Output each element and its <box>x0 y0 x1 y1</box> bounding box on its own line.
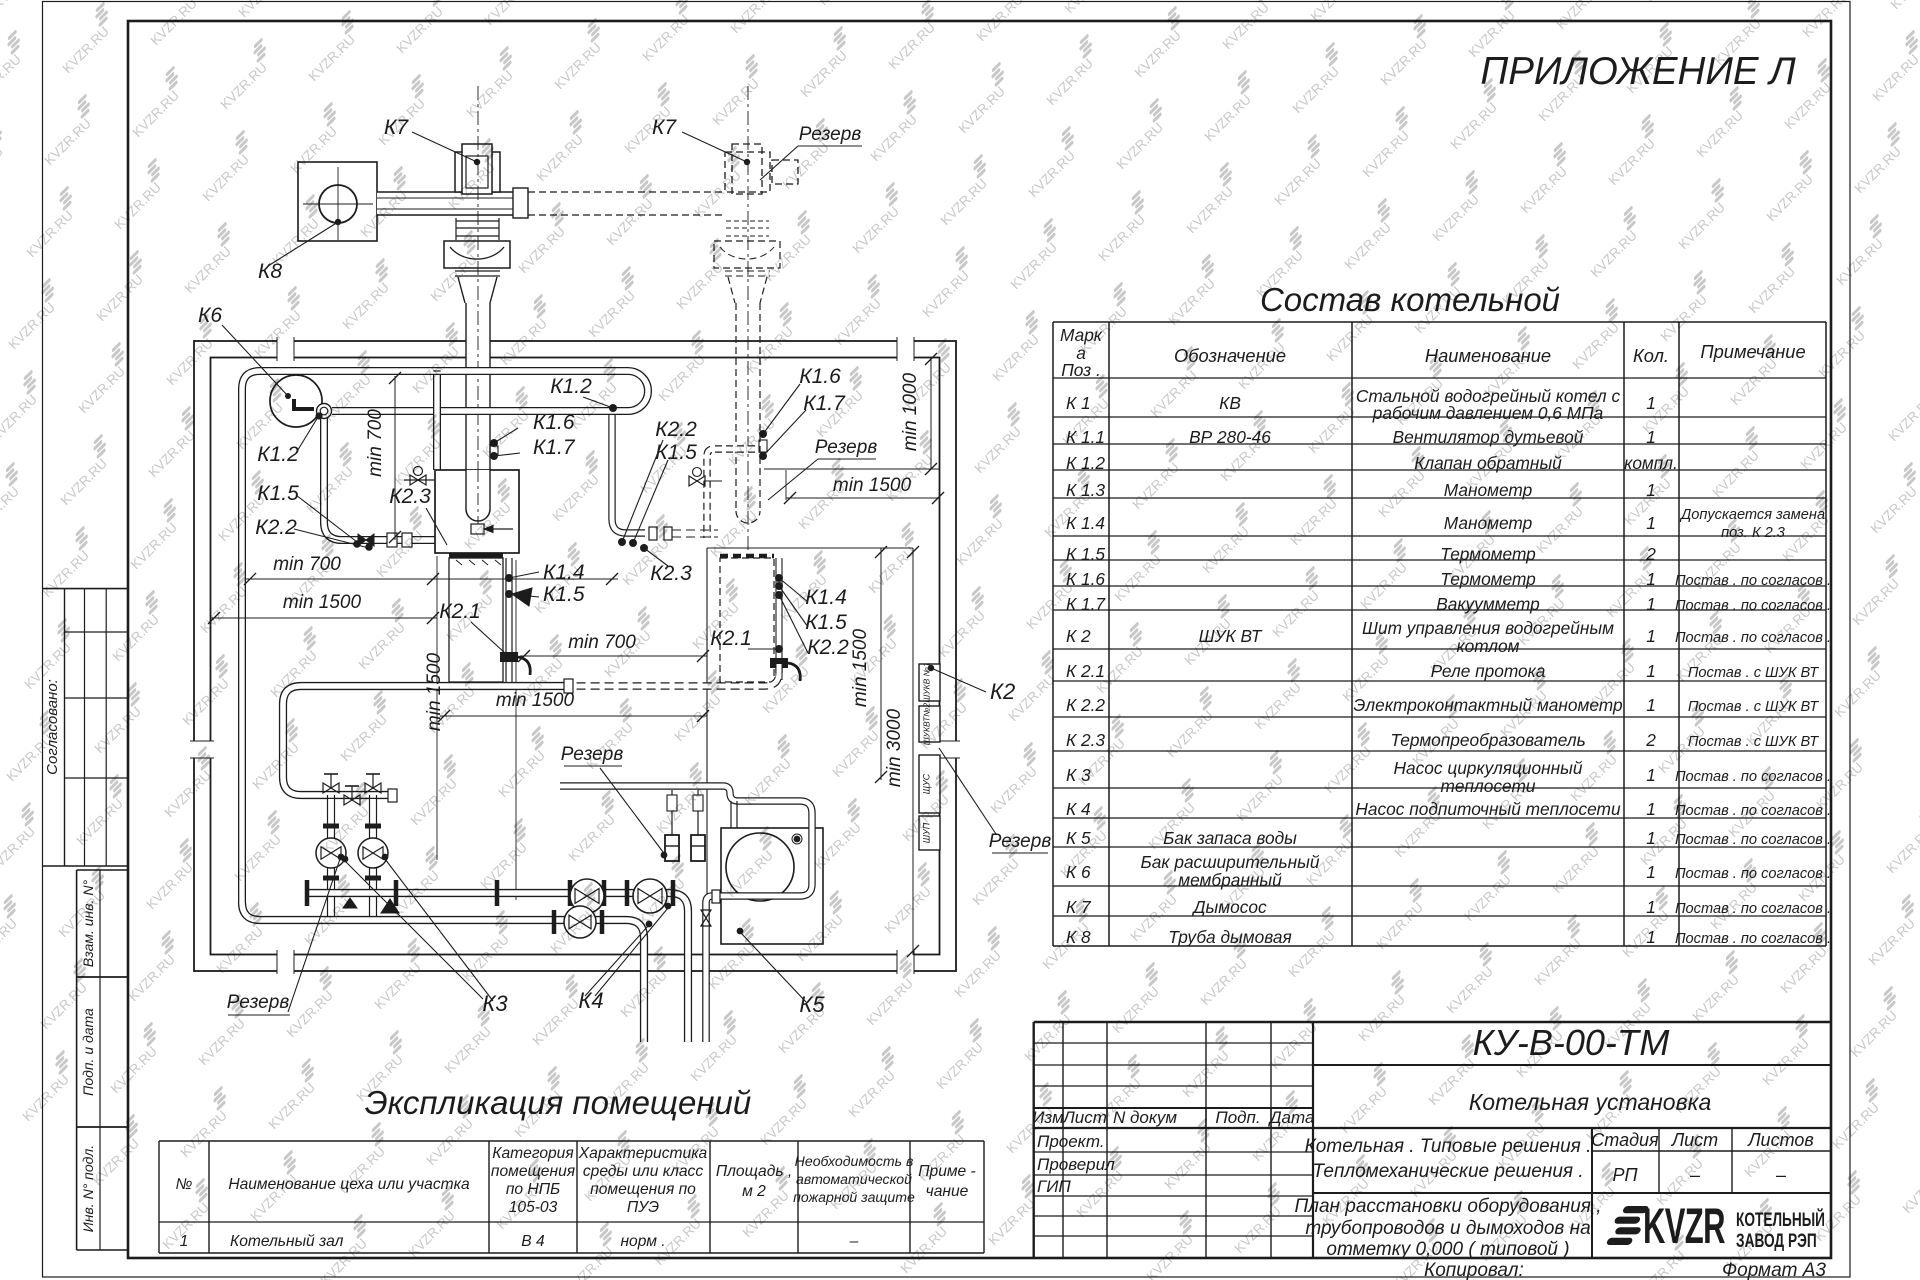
svg-text:трубопроводов и дымоходов на: трубопроводов и дымоходов на <box>1305 1218 1590 1239</box>
svg-text:Резерв: Резерв <box>989 831 1052 852</box>
svg-text:Постав . по согласов .: Постав . по согласов . <box>1675 901 1831 917</box>
svg-text:1: 1 <box>1646 626 1656 646</box>
svg-text:Подп. и дата: Подп. и дата <box>80 1008 96 1096</box>
svg-text:1: 1 <box>1646 594 1656 614</box>
svg-text:Вакуумметр: Вакуумметр <box>1436 594 1540 614</box>
svg-text:К 2.1: К 2.1 <box>1066 661 1105 681</box>
svg-text:В 4: В 4 <box>521 1233 545 1250</box>
svg-text:К 1.5: К 1.5 <box>1066 544 1105 564</box>
svg-text:Резерв: Резерв <box>799 124 862 145</box>
svg-text:Постав . с ШУК ВТ: Постав . с ШУК ВТ <box>1688 665 1819 681</box>
svg-text:min 3000: min 3000 <box>884 708 905 787</box>
svg-text:Электроконтактный манометр: Электроконтактный манометр <box>1353 695 1623 715</box>
svg-text:1: 1 <box>1646 695 1656 715</box>
svg-text:Постав . по согласов .: Постав . по согласов . <box>1675 769 1831 785</box>
svg-text:№: № <box>176 1176 193 1193</box>
svg-text:Примечание: Примечание <box>1700 341 1805 362</box>
svg-text:К 2.2: К 2.2 <box>1066 695 1105 715</box>
svg-text:N докум: N докум <box>1113 1108 1177 1127</box>
svg-text:min 700: min 700 <box>365 409 386 477</box>
svg-text:КВ: КВ <box>1219 393 1241 413</box>
svg-text:Допускается замена: Допускается замена <box>1679 507 1825 523</box>
svg-text:1: 1 <box>1646 661 1656 681</box>
svg-text:Вентилятор дутьевой: Вентилятор дутьевой <box>1393 427 1584 447</box>
svg-text:К1.7: К1.7 <box>533 436 576 459</box>
svg-text:К 1.6: К 1.6 <box>1066 569 1105 589</box>
svg-text:ПУЭ: ПУЭ <box>627 1199 659 1216</box>
svg-text:К1.6: К1.6 <box>799 365 841 388</box>
svg-text:Подп.: Подп. <box>1215 1108 1260 1127</box>
svg-text:Проверил: Проверил <box>1037 1155 1115 1174</box>
svg-text:К1.2: К1.2 <box>257 443 299 466</box>
svg-text:К1.5: К1.5 <box>805 611 847 634</box>
svg-text:К 1.7: К 1.7 <box>1066 594 1106 614</box>
svg-text:–: – <box>1775 1165 1787 1185</box>
svg-text:1: 1 <box>1646 799 1656 819</box>
svg-text:Копировал:: Копировал: <box>1424 1260 1524 1280</box>
svg-text:Бак расширительный: Бак расширительный <box>1141 852 1320 872</box>
svg-text:ЩУС: ЩУС <box>922 773 932 794</box>
svg-text:Бак запаса воды: Бак запаса воды <box>1163 828 1297 848</box>
svg-text:РП: РП <box>1612 1165 1638 1185</box>
svg-text:Проект.: Проект. <box>1037 1132 1105 1151</box>
svg-text:Наименование: Наименование <box>1425 345 1551 366</box>
svg-text:КОТЕЛЬНЫЙ: КОТЕЛЬНЫЙ <box>1736 1209 1825 1231</box>
svg-text:К2.2: К2.2 <box>255 516 297 539</box>
svg-text:1: 1 <box>1646 513 1656 533</box>
svg-text:К4: К4 <box>578 988 603 1013</box>
svg-text:Манометр: Манометр <box>1444 480 1533 500</box>
svg-text:Постав . с ШУК ВТ: Постав . с ШУК ВТ <box>1688 699 1819 715</box>
svg-text:1: 1 <box>1646 765 1656 785</box>
svg-text:Котельный зал: Котельный зал <box>230 1233 344 1250</box>
svg-text:Категория: Категория <box>492 1145 574 1162</box>
svg-text:К 7: К 7 <box>1066 897 1092 917</box>
svg-text:К 4: К 4 <box>1066 799 1091 819</box>
svg-text:поз. К 2.3: поз. К 2.3 <box>1721 525 1785 541</box>
svg-text:Постав . по согласов .: Постав . по согласов . <box>1675 931 1831 947</box>
svg-text:К 1.2: К 1.2 <box>1066 453 1105 473</box>
svg-text:компл.: компл. <box>1624 453 1678 473</box>
svg-text:–: – <box>849 1233 859 1250</box>
svg-text:К2: К2 <box>990 679 1015 704</box>
svg-text:Постав . по согласов .: Постав . по согласов . <box>1675 832 1831 848</box>
svg-text:норм .: норм . <box>620 1233 665 1250</box>
svg-text:К2.3: К2.3 <box>650 562 692 585</box>
svg-text:К2.2: К2.2 <box>807 636 849 659</box>
svg-text:К 2.3: К 2.3 <box>1066 730 1105 750</box>
svg-text:Постав . по согласов .: Постав . по согласов . <box>1675 630 1831 646</box>
svg-text:К1.2: К1.2 <box>550 375 592 398</box>
svg-text:Согласовано:: Согласовано: <box>44 679 61 775</box>
svg-text:КУ-В-00-ТМ: КУ-В-00-ТМ <box>1473 1022 1670 1063</box>
svg-text:отметку 0,000 ( типовой ): отметку 0,000 ( типовой ) <box>1326 1239 1569 1260</box>
svg-text:м 2: м 2 <box>742 1183 766 1200</box>
svg-text:Поз .: Поз . <box>1061 360 1101 380</box>
svg-text:Труба дымовая: Труба дымовая <box>1168 927 1291 947</box>
svg-text:Резерв: Резерв <box>815 437 878 458</box>
svg-text:Инв. N° подл.: Инв. N° подл. <box>80 1145 96 1232</box>
svg-text:К 2: К 2 <box>1066 626 1091 646</box>
svg-text:Необходимость в: Необходимость в <box>795 1153 914 1169</box>
svg-text:Шит управления водогрейным: Шит управления водогрейным <box>1362 618 1614 638</box>
svg-text:ГИП: ГИП <box>1037 1177 1071 1196</box>
svg-text:2: 2 <box>1645 730 1656 750</box>
svg-text:чание: чание <box>926 1183 969 1200</box>
svg-text:Кол.: Кол. <box>1633 345 1669 366</box>
svg-text:KVZR: KVZR <box>1643 1197 1725 1253</box>
